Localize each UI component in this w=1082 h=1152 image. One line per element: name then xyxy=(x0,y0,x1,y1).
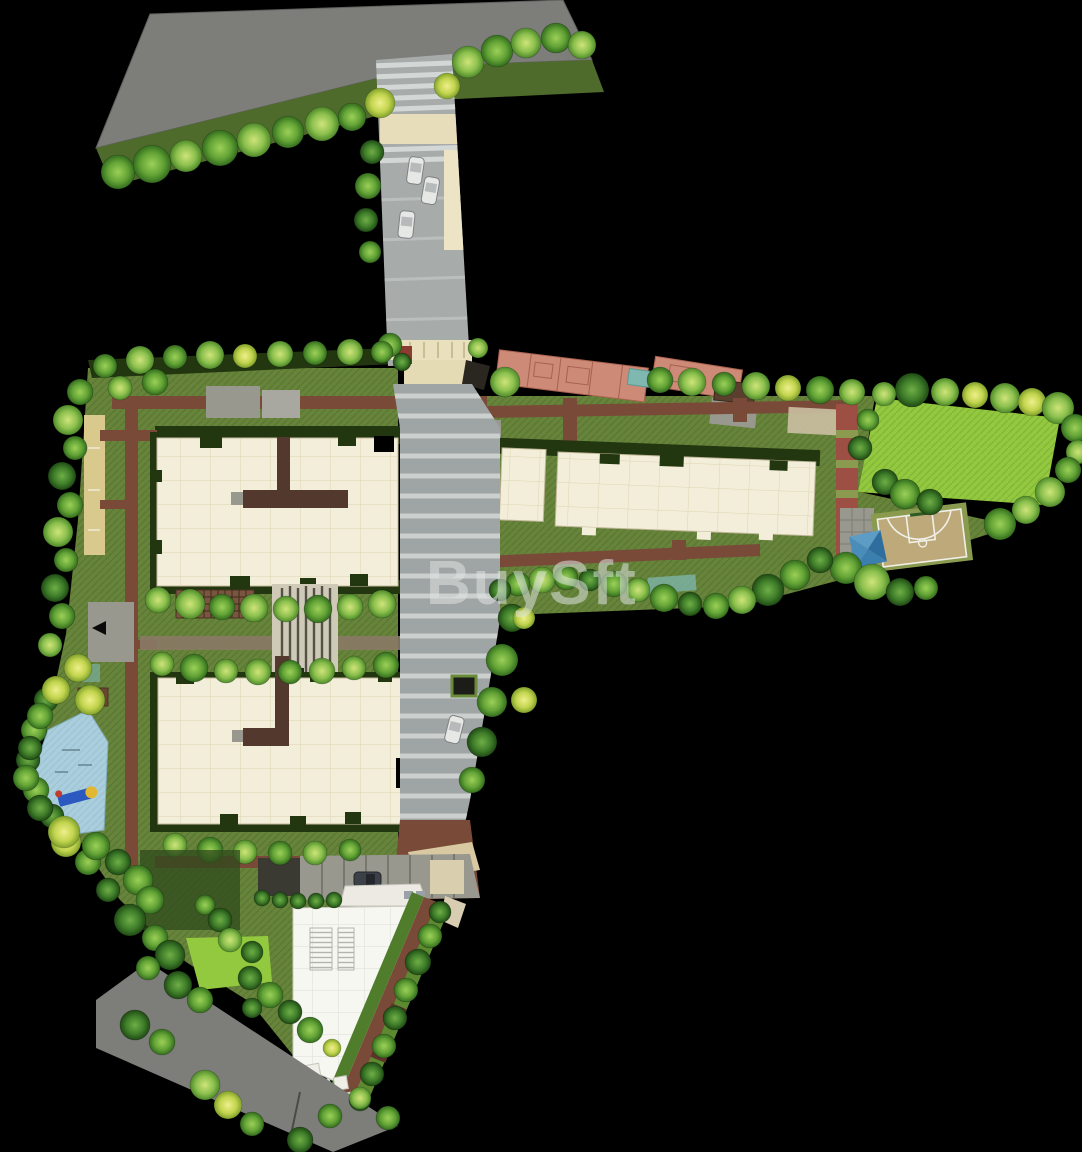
courtyard-path xyxy=(140,636,402,650)
entry-shrub xyxy=(490,367,520,397)
watermark-text: BuySft xyxy=(426,548,638,619)
west-plaza xyxy=(88,602,134,662)
entry-rumble-2 xyxy=(404,360,472,386)
roof-vent-1 xyxy=(310,928,332,970)
building-1 xyxy=(150,432,406,594)
parking-bays xyxy=(444,150,472,250)
roof-vent-2 xyxy=(338,928,354,970)
drain-grate xyxy=(452,676,476,696)
site-plan-canvas: BuySft xyxy=(0,0,1082,1152)
building-2 xyxy=(150,656,406,832)
parking-pad xyxy=(430,860,464,894)
central-road xyxy=(390,384,510,900)
north-plaza-pavers xyxy=(206,386,260,418)
rumble-strip xyxy=(380,114,472,144)
